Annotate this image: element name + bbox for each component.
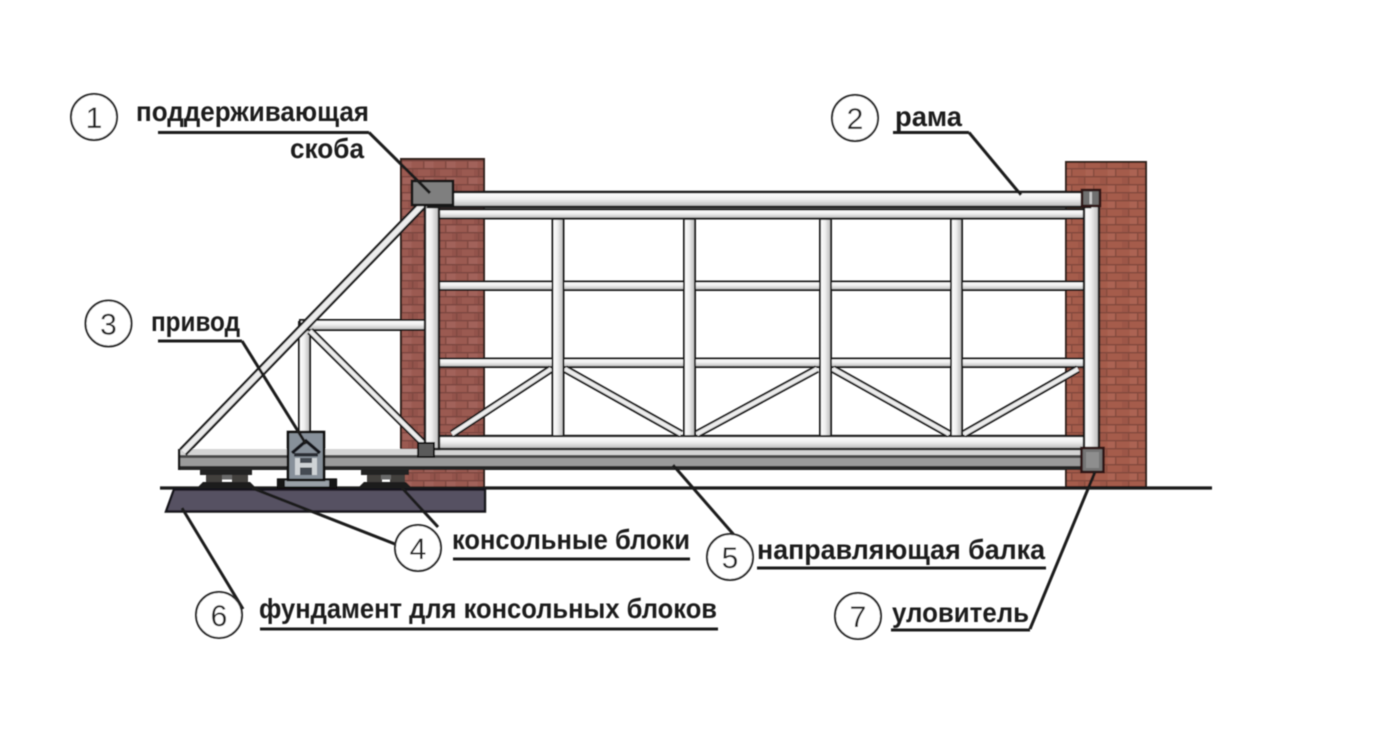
svg-text:7: 7 (850, 601, 867, 634)
svg-text:1: 1 (86, 102, 103, 135)
svg-text:5: 5 (722, 542, 739, 575)
svg-text:3: 3 (100, 309, 117, 342)
svg-text:скоба: скоба (290, 133, 364, 164)
svg-text:консольные блоки: консольные блоки (452, 524, 690, 555)
svg-text:4: 4 (410, 533, 427, 566)
svg-text:6: 6 (211, 600, 228, 633)
svg-text:привод: привод (151, 306, 240, 337)
svg-text:фундамент для консольных блоко: фундамент для консольных блоков (259, 593, 717, 624)
svg-text:2: 2 (847, 103, 864, 136)
svg-text:направляющая балка: направляющая балка (757, 534, 1045, 565)
svg-text:уловитель: уловитель (892, 597, 1029, 628)
svg-text:поддерживающая: поддерживающая (136, 96, 369, 127)
svg-text:рама: рама (895, 101, 962, 132)
